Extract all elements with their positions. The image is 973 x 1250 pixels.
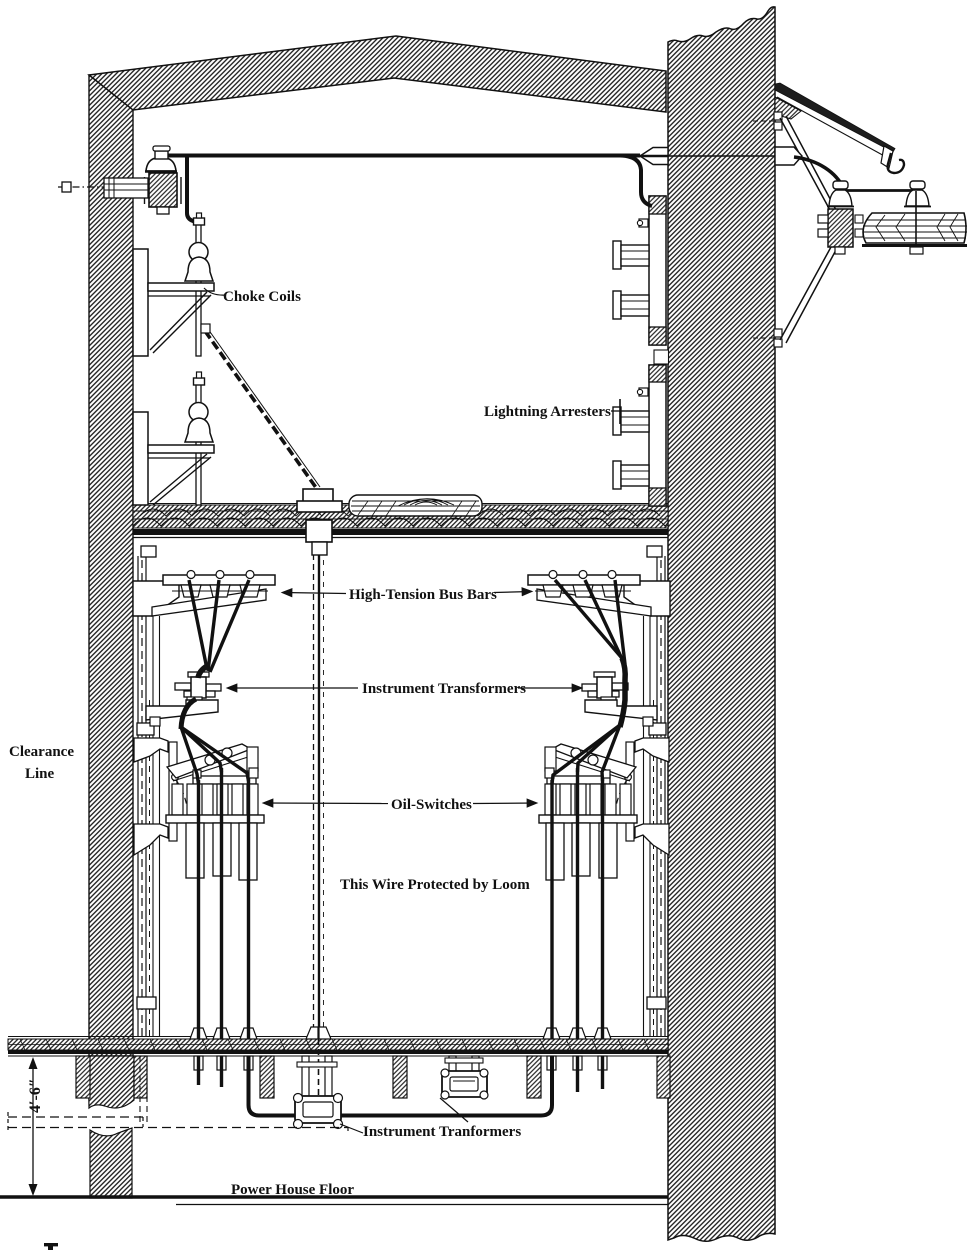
svg-text:Line: Line	[25, 766, 55, 782]
svg-text:Lightning Arresters: Lightning Arresters	[484, 404, 611, 420]
svg-text:Power House Floor: Power House Floor	[231, 1182, 354, 1198]
svg-text:4′-6″: 4′-6″	[27, 1078, 44, 1113]
svg-text:Instrument Transformers: Instrument Transformers	[362, 681, 526, 697]
svg-text:Clearance: Clearance	[9, 744, 74, 760]
svg-text:Oil-Switches: Oil-Switches	[391, 797, 472, 813]
svg-text:This Wire Protected by Loom: This Wire Protected by Loom	[340, 877, 530, 893]
svg-text:Choke Coils: Choke Coils	[223, 289, 301, 305]
svg-text:Instrument Tranformers: Instrument Tranformers	[363, 1124, 521, 1140]
svg-text:High-Tension Bus Bars: High-Tension Bus Bars	[349, 587, 497, 603]
